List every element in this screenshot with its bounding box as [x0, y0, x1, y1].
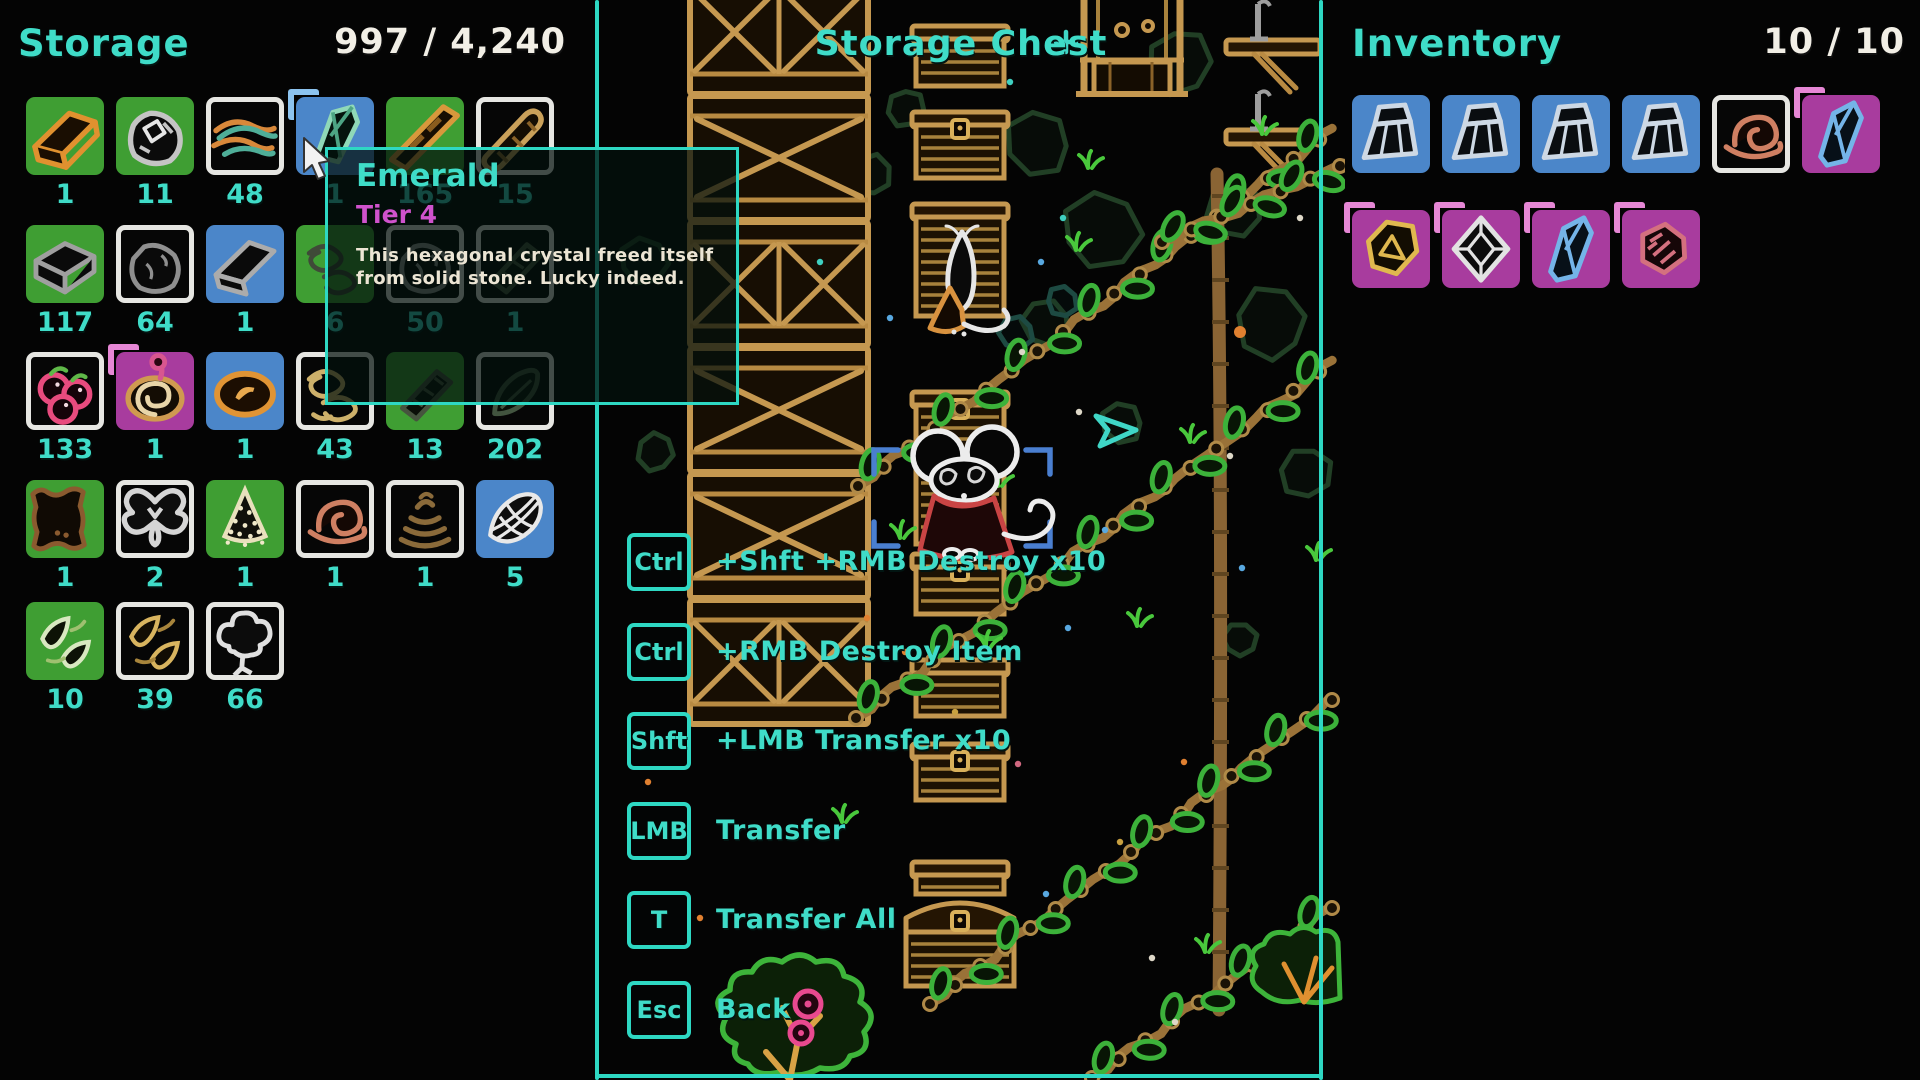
slot-rock-chunk[interactable]	[1352, 95, 1430, 173]
keybind-action-label: Transfer All	[716, 891, 896, 949]
snail-shell-icon	[292, 476, 378, 562]
rock-chunk-icon	[1438, 91, 1524, 177]
rock-chunk-icon	[1348, 91, 1434, 177]
keybind-key-shft-2: Shft	[627, 712, 691, 770]
slot-snail-shell[interactable]	[1712, 95, 1790, 173]
item-count: 1	[382, 562, 468, 593]
slot-berries[interactable]	[26, 352, 104, 430]
slot-white-tree[interactable]	[206, 602, 284, 680]
item-count: 202	[472, 434, 558, 465]
slot-mushroom-cap[interactable]	[206, 352, 284, 430]
item-count: 66	[202, 684, 288, 715]
keybind-key-esc-5: Esc	[627, 981, 691, 1039]
item-count: 39	[112, 684, 198, 715]
item-count: 117	[22, 307, 108, 338]
rock-chunk-icon	[1618, 91, 1704, 177]
item-count: 1	[112, 434, 198, 465]
selected-slot-bracket	[1344, 202, 1375, 233]
keybind-action-label: +Shft +RMB Destroy x10	[716, 533, 1106, 591]
wooden-pole	[1212, 174, 1229, 1010]
slot-snail-shell[interactable]	[296, 480, 374, 558]
selected-slot-bracket	[1794, 87, 1825, 118]
fiber-bundle-icon	[202, 93, 288, 179]
moth-icon	[112, 476, 198, 562]
dung-coil-icon	[382, 476, 468, 562]
ingot-orange-icon	[22, 93, 108, 179]
striped-shell-icon	[472, 476, 558, 562]
keybind-key-ctrl-0: Ctrl	[627, 533, 691, 591]
brown-pelt-icon	[22, 476, 108, 562]
seed-cone-icon	[202, 476, 288, 562]
item-count: 43	[292, 434, 378, 465]
slot-gold-leaves[interactable]	[116, 602, 194, 680]
pale-leaves-icon	[22, 598, 108, 684]
tooltip-item-name: Emerald	[356, 158, 500, 194]
item-count: 1	[22, 562, 108, 593]
ore-chunk-icon	[112, 93, 198, 179]
tooltip-item-description: This hexagonal crystal freed itself from…	[356, 244, 713, 290]
selected-slot-bracket	[108, 344, 139, 375]
item-count: 11	[112, 179, 198, 210]
slot-onion-swirl[interactable]	[116, 352, 194, 430]
slot-striped-shell[interactable]	[476, 480, 554, 558]
mushroom-cap-icon	[202, 348, 288, 434]
dark-ingot-icon	[202, 221, 288, 307]
berries-icon	[22, 348, 108, 434]
inventory-capacity-count: 10 / 10	[1700, 22, 1905, 62]
dark-brick-icon	[22, 221, 108, 307]
item-count: 10	[22, 684, 108, 715]
item-count: 2	[112, 562, 198, 593]
item-count: 1	[202, 307, 288, 338]
slot-fiber-bundle[interactable]	[206, 97, 284, 175]
tooltip-item-tier: Tier 4	[356, 200, 437, 229]
selected-slot-bracket	[1614, 202, 1645, 233]
item-count: 13	[382, 434, 468, 465]
slot-ore-chunk[interactable]	[116, 97, 194, 175]
slot-dark-rock[interactable]	[116, 225, 194, 303]
slot-moth[interactable]	[116, 480, 194, 558]
slot-rock-chunk[interactable]	[1532, 95, 1610, 173]
keybind-action-label: +LMB Transfer x10	[716, 712, 1011, 770]
hanging-vine	[1156, 159, 1346, 249]
item-count: 48	[202, 179, 288, 210]
keybind-action-label: Back	[716, 981, 791, 1039]
item-count: 64	[112, 307, 198, 338]
keybind-key-lmb-3: LMB	[627, 802, 691, 860]
slot-gem-gold[interactable]	[1352, 210, 1430, 288]
item-count: 5	[472, 562, 558, 593]
selected-slot-bracket	[1524, 202, 1555, 233]
game-screen: Storage 997 / 4,240 11148116515117641650…	[0, 0, 1920, 1080]
inventory-panel-title: Inventory	[1352, 22, 1562, 65]
tooltip-description-line1: This hexagonal crystal freed itself	[356, 244, 713, 267]
item-count: 133	[22, 434, 108, 465]
storage-chest-title: Storage Chest	[600, 24, 1322, 64]
item-count: 1	[22, 179, 108, 210]
snail-shell-icon	[1708, 91, 1794, 177]
slot-gem-octahedron[interactable]	[1442, 210, 1520, 288]
dark-rock-icon	[112, 221, 198, 307]
item-count: 1	[292, 562, 378, 593]
slot-brown-pelt[interactable]	[26, 480, 104, 558]
slot-pale-leaves[interactable]	[26, 602, 104, 680]
slot-ingot-orange[interactable]	[26, 97, 104, 175]
gold-leaves-icon	[112, 598, 198, 684]
right-panel-divider	[1319, 0, 1323, 1080]
slot-rock-chunk[interactable]	[1442, 95, 1520, 173]
selected-slot-bracket	[288, 89, 319, 120]
tooltip-description-line2: from solid stone. Lucky indeed.	[356, 267, 713, 290]
slot-dark-brick[interactable]	[26, 225, 104, 303]
keybind-action-label: +RMB Destroy Item	[716, 623, 1023, 681]
keybind-action-label: Transfer	[716, 802, 846, 860]
slot-gem-rose[interactable]	[1622, 210, 1700, 288]
item-count: 1	[202, 434, 288, 465]
white-tree-icon	[202, 598, 288, 684]
corner-bush	[1252, 927, 1340, 1002]
slot-seed-cone[interactable]	[206, 480, 284, 558]
item-tooltip: Emerald Tier 4 This hexagonal crystal fr…	[325, 147, 739, 405]
slot-dung-coil[interactable]	[386, 480, 464, 558]
slot-dark-ingot[interactable]	[206, 225, 284, 303]
mouse-cursor-pointer	[301, 136, 335, 182]
slot-rock-chunk[interactable]	[1622, 95, 1700, 173]
middle-panel-bottom-border	[595, 1074, 1323, 1078]
slot-gem-blue[interactable]	[1802, 95, 1880, 173]
item-count: 1	[202, 562, 288, 593]
keybind-key-ctrl-1: Ctrl	[627, 623, 691, 681]
selected-slot-bracket	[1434, 202, 1465, 233]
slot-gem-blue[interactable]	[1532, 210, 1610, 288]
rock-chunk-icon	[1528, 91, 1614, 177]
keybind-key-t-4: T	[627, 891, 691, 949]
